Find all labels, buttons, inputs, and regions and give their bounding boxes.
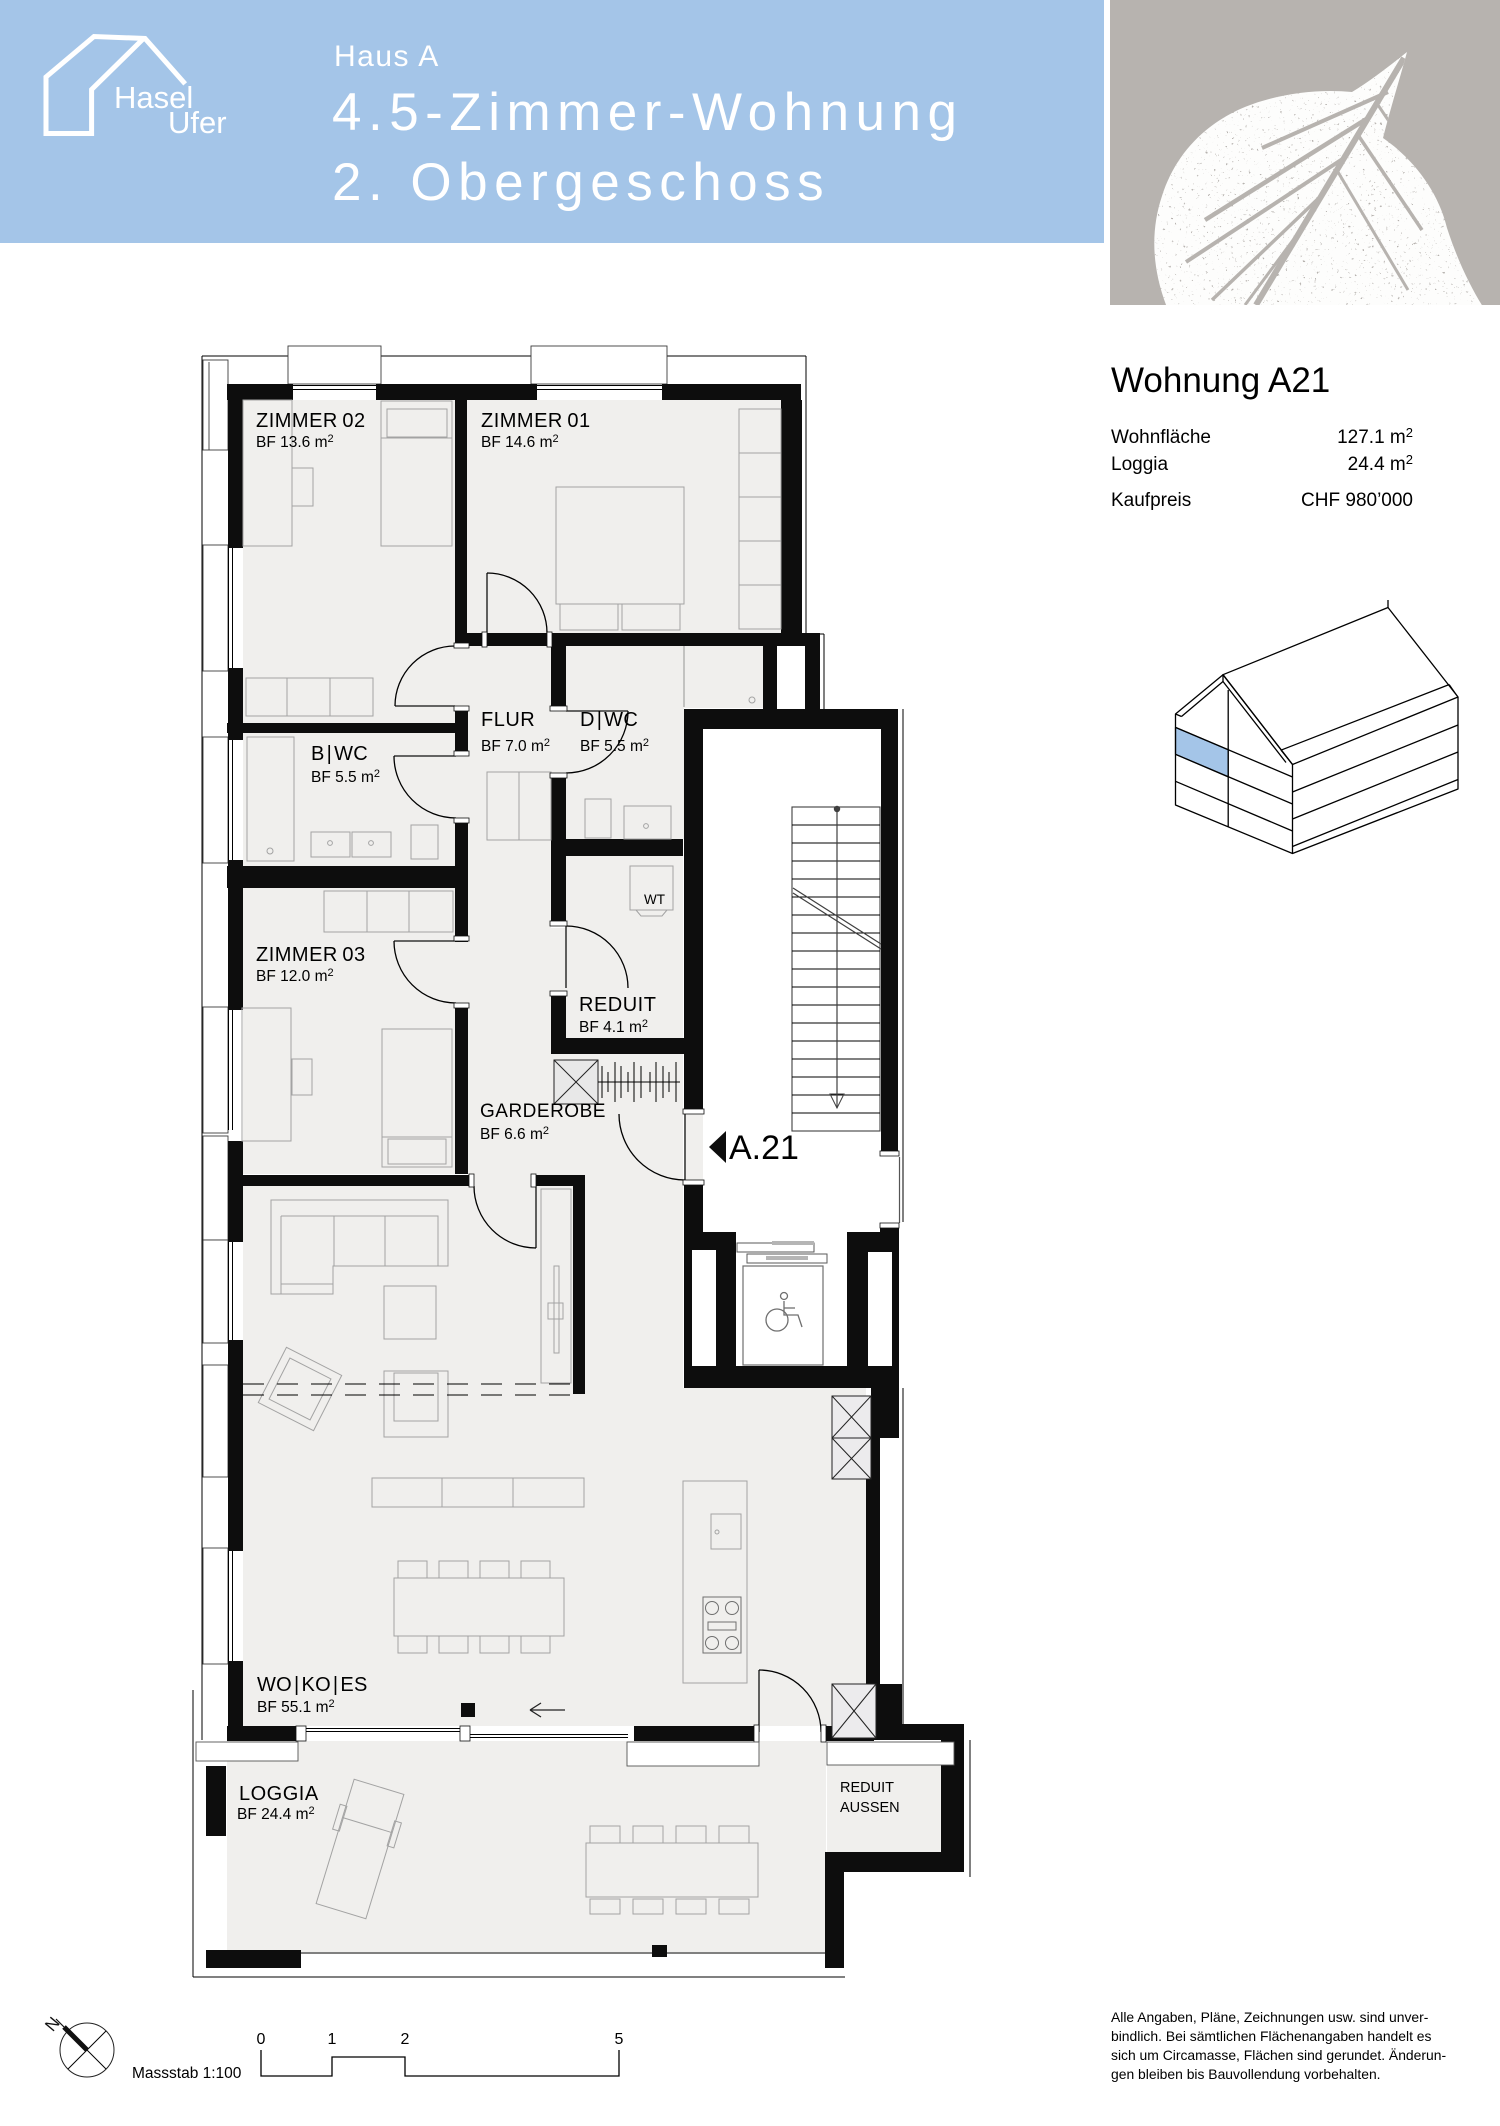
svg-text:BF 5.5 m2: BF 5.5 m2 <box>580 737 649 755</box>
svg-text:bindlich. Bei sämtlichen Fläch: bindlich. Bei sämtlichen Flächenangaben … <box>1111 2028 1432 2044</box>
svg-text:BF 55.1 m2: BF 55.1 m2 <box>257 1698 335 1716</box>
svg-text:Massstab 1:100: Massstab 1:100 <box>132 2065 242 2082</box>
svg-text:WO | KO | ES: WO | KO | ES <box>257 1674 368 1696</box>
svg-text:sich um Circamasse, Flächen si: sich um Circamasse, Flächen sind gerunde… <box>1111 2047 1446 2063</box>
svg-text:A.21: A.21 <box>729 1129 799 1167</box>
svg-text:FLUR: FLUR <box>481 709 535 731</box>
svg-text:GARDEROBE: GARDEROBE <box>480 1101 606 1122</box>
svg-text:CHF 980’000: CHF 980’000 <box>1301 490 1413 511</box>
svg-text:BF 24.4 m2: BF 24.4 m2 <box>237 1805 315 1823</box>
svg-text:ZIMMER 03: ZIMMER 03 <box>256 944 366 966</box>
svg-text:BF 7.0 m2: BF 7.0 m2 <box>481 737 550 755</box>
svg-text:Wohnung A21: Wohnung A21 <box>1111 361 1330 400</box>
svg-text:LOGGIA: LOGGIA <box>239 1783 319 1805</box>
svg-text:1: 1 <box>328 2031 337 2048</box>
svg-text:5: 5 <box>615 2031 624 2048</box>
svg-text:Wohnfläche: Wohnfläche <box>1111 427 1211 448</box>
svg-text:BF 14.6 m2: BF 14.6 m2 <box>481 433 559 451</box>
svg-text:D | WC: D | WC <box>580 709 638 731</box>
svg-text:BF 6.6 m2: BF 6.6 m2 <box>480 1125 549 1143</box>
svg-text:REDUIT: REDUIT <box>579 994 656 1016</box>
svg-text:ZIMMER 02: ZIMMER 02 <box>256 410 366 432</box>
svg-text:127.1 m2: 127.1 m2 <box>1337 425 1413 448</box>
svg-text:gen bleiben bis Bauvollendung: gen bleiben bis Bauvollendung vorbehalte… <box>1111 2066 1381 2082</box>
svg-text:Loggia: Loggia <box>1111 454 1168 475</box>
svg-text:REDUIT: REDUIT <box>840 1780 894 1796</box>
svg-text:AUSSEN: AUSSEN <box>840 1800 900 1816</box>
svg-text:2. Obergeschoss: 2. Obergeschoss <box>332 153 830 212</box>
svg-text:Haus A: Haus A <box>334 40 440 73</box>
svg-text:Kaufpreis: Kaufpreis <box>1111 490 1191 511</box>
svg-text:0: 0 <box>257 2031 266 2048</box>
svg-text:ZIMMER 01: ZIMMER 01 <box>481 410 591 432</box>
svg-text:4.5-Zimmer-Wohnung: 4.5-Zimmer-Wohnung <box>332 83 963 142</box>
svg-text:BF 13.6 m2: BF 13.6 m2 <box>256 433 334 451</box>
svg-text:WT: WT <box>644 892 665 907</box>
svg-text:24.4 m2: 24.4 m2 <box>1348 452 1413 475</box>
svg-text:BF 12.0 m2: BF 12.0 m2 <box>256 967 334 985</box>
svg-text:BF 5.5 m2: BF 5.5 m2 <box>311 768 380 786</box>
svg-text:Alle Angaben, Pläne, Zeichnung: Alle Angaben, Pläne, Zeichnungen usw. si… <box>1111 2009 1429 2025</box>
svg-text:B | WC: B | WC <box>311 743 368 765</box>
svg-text:Ufer: Ufer <box>168 105 227 140</box>
svg-text:2: 2 <box>401 2031 410 2048</box>
svg-text:BF 4.1 m2: BF 4.1 m2 <box>579 1018 648 1036</box>
